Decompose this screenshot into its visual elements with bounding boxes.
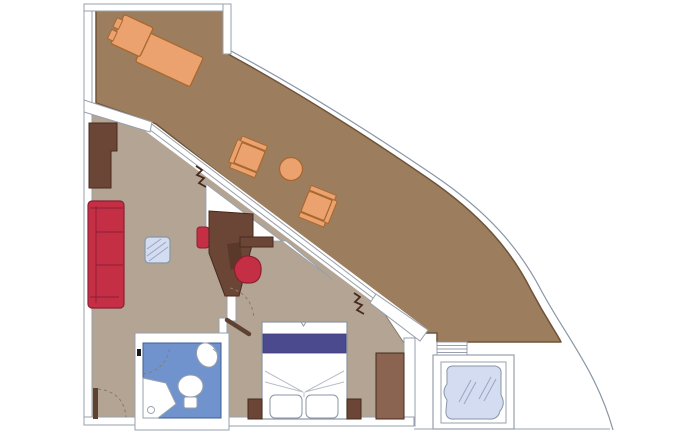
bed-runner [263, 334, 346, 353]
stool [234, 256, 261, 283]
bathroom [135, 333, 229, 430]
wall-bedroom-east [404, 338, 415, 426]
wardrobe [376, 353, 404, 419]
terrace-round-table [280, 158, 303, 181]
toilet [178, 375, 203, 397]
nightstand-left [248, 399, 262, 419]
toilet-tank [184, 397, 197, 408]
desk-chair [197, 227, 209, 248]
whirlpool-deck [433, 342, 514, 429]
pillow-left [270, 395, 302, 418]
shower-drain-icon [148, 407, 155, 414]
wall-terrace-step [223, 4, 231, 54]
wall-bottom-living [84, 417, 143, 425]
floor-plan [0, 0, 700, 433]
whirlpool-tub [444, 366, 503, 419]
glass-coffee-table [145, 237, 170, 263]
nightstand-right [347, 399, 361, 419]
pillow-right [306, 395, 338, 418]
wall-terrace-top [84, 4, 231, 11]
sofa [88, 201, 124, 308]
wall-shelf [240, 237, 273, 247]
double-bed [262, 322, 347, 419]
entry-door-leaf [93, 388, 98, 419]
bathroom-door-hinge-mark [137, 349, 141, 356]
